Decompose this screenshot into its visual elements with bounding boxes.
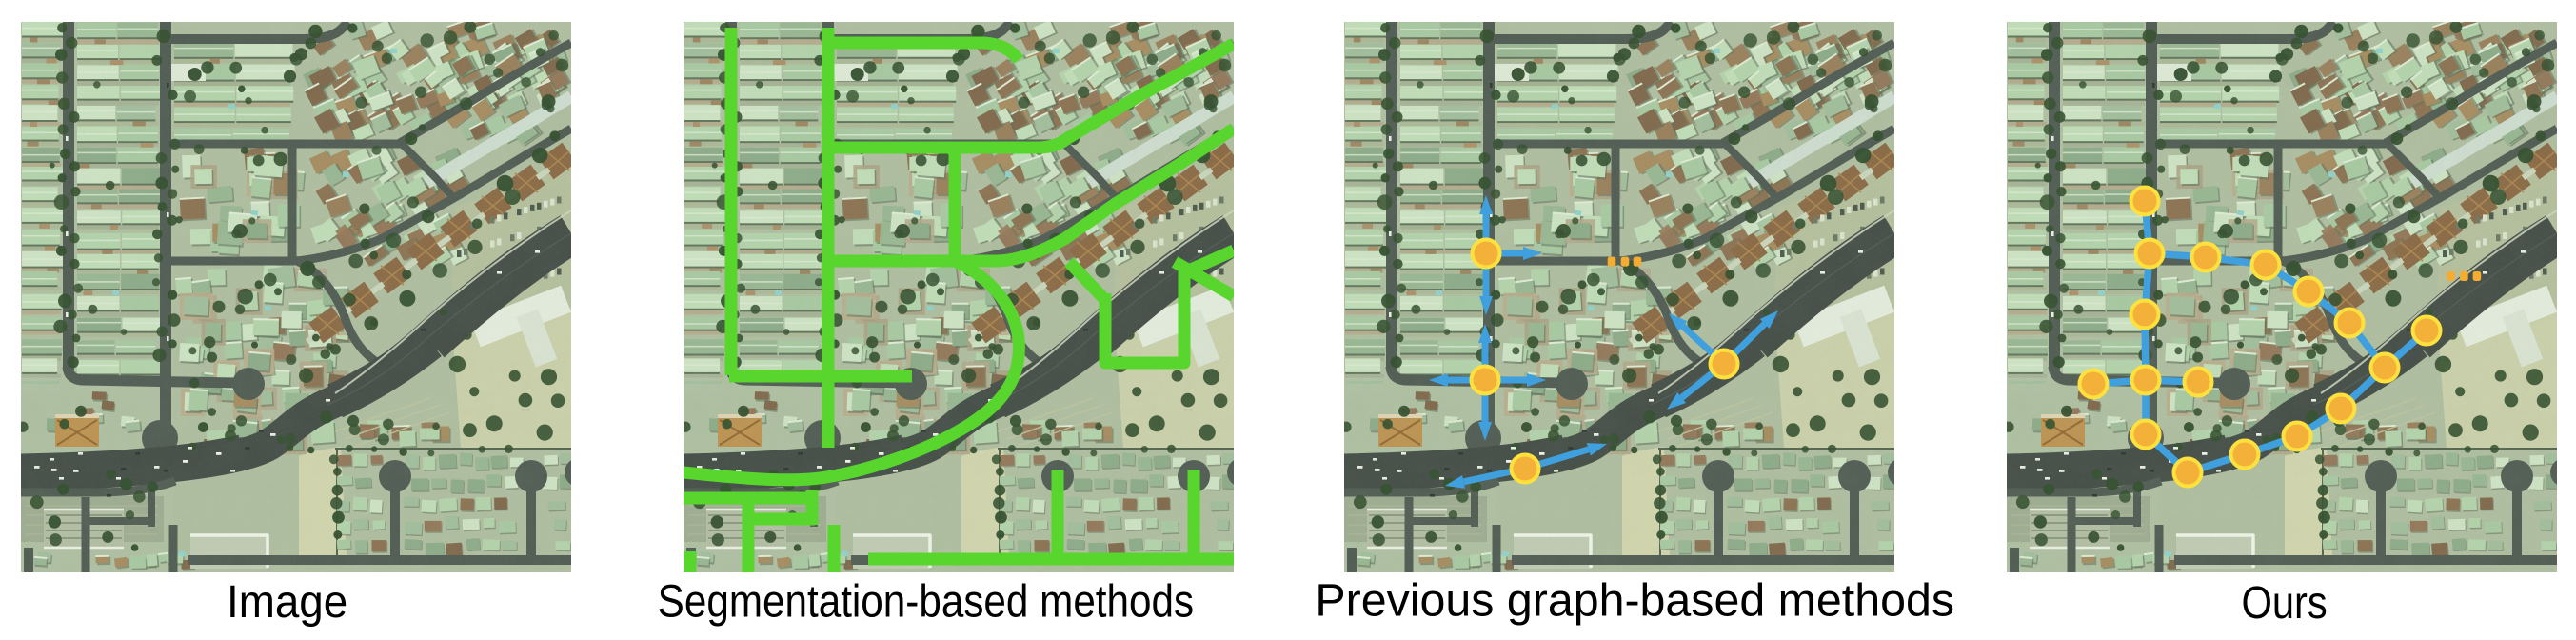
svg-text:Previous graph-based methods: Previous graph-based methods [1315, 575, 1954, 627]
svg-text:Segmentation-based methods: Segmentation-based methods [658, 575, 1194, 627]
svg-text:Ours: Ours [2241, 576, 2327, 628]
svg-text:Image: Image [227, 576, 347, 627]
